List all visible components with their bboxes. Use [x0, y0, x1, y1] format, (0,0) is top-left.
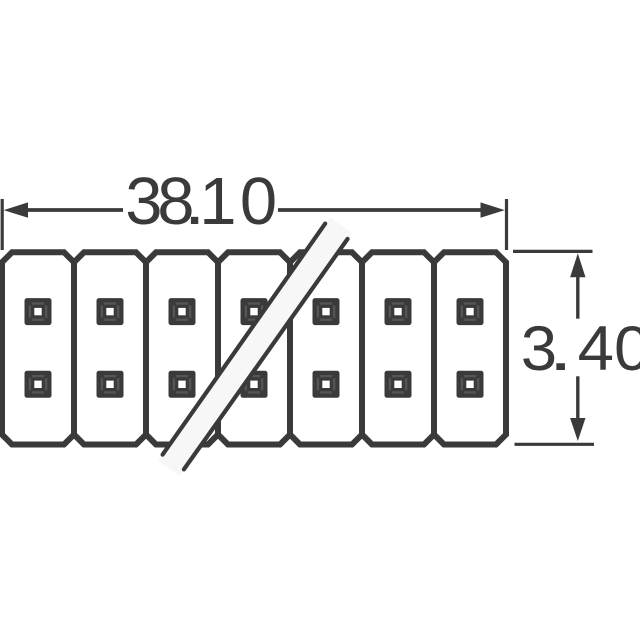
svg-text:.: . — [548, 312, 573, 384]
svg-text:0: 0 — [614, 313, 640, 384]
svg-text:0: 0 — [240, 164, 277, 239]
svg-text:4: 4 — [578, 313, 614, 384]
svg-text:1: 1 — [199, 164, 236, 239]
